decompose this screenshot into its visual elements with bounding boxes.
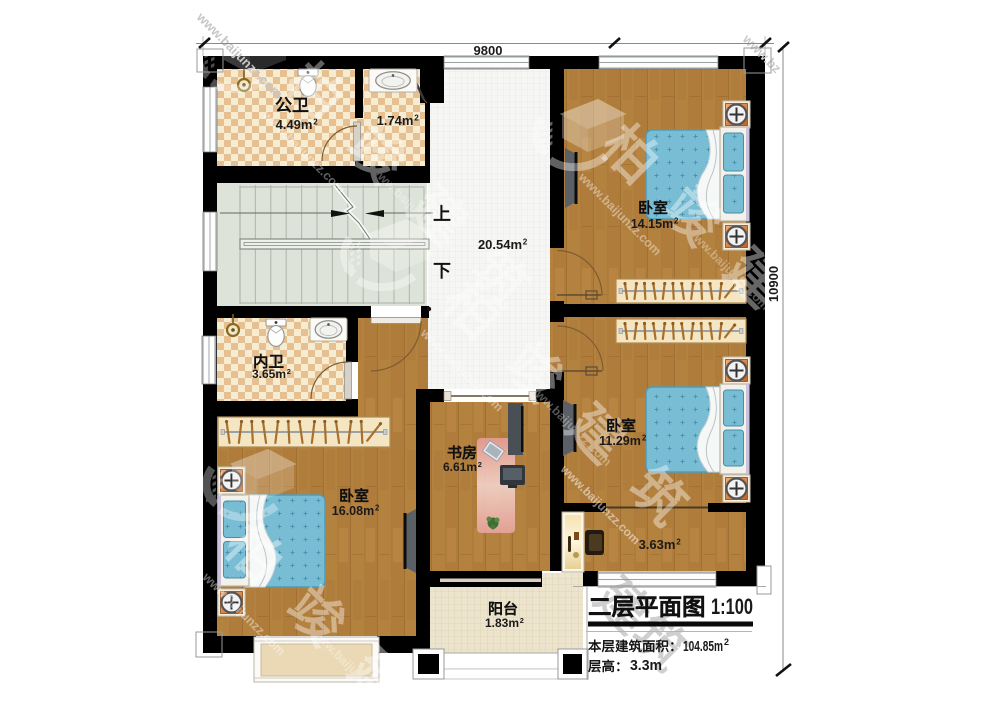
svg-text:20.54m: 20.54m	[478, 237, 522, 252]
svg-text:1.83m: 1.83m	[485, 616, 519, 630]
svg-text:16.08m: 16.08m	[332, 504, 374, 518]
svg-text:104.85m: 104.85m	[683, 638, 723, 655]
svg-text:2: 2	[520, 616, 524, 625]
svg-text:2: 2	[724, 637, 729, 647]
svg-text:2: 2	[642, 434, 647, 443]
svg-text:2: 2	[478, 460, 482, 469]
svg-text:3.65m: 3.65m	[252, 367, 286, 381]
svg-text:3.3m: 3.3m	[630, 657, 662, 674]
svg-text:2: 2	[523, 237, 528, 246]
svg-text:4.49m: 4.49m	[276, 117, 313, 132]
svg-text:2: 2	[676, 538, 681, 547]
svg-text:11.29m: 11.29m	[599, 434, 641, 448]
svg-text:6.61m: 6.61m	[443, 460, 477, 474]
svg-text:2: 2	[313, 118, 318, 127]
svg-text:2: 2	[414, 114, 419, 123]
svg-text:10900: 10900	[766, 266, 781, 302]
svg-text:2: 2	[674, 217, 679, 226]
svg-text:14.15m: 14.15m	[631, 217, 673, 231]
svg-text:9800: 9800	[474, 43, 503, 58]
svg-text:1:100: 1:100	[711, 594, 753, 619]
svg-text:1.74m: 1.74m	[377, 113, 414, 128]
svg-text:3.63m: 3.63m	[639, 537, 676, 552]
svg-text:2: 2	[287, 367, 291, 376]
svg-text:2: 2	[375, 504, 380, 513]
